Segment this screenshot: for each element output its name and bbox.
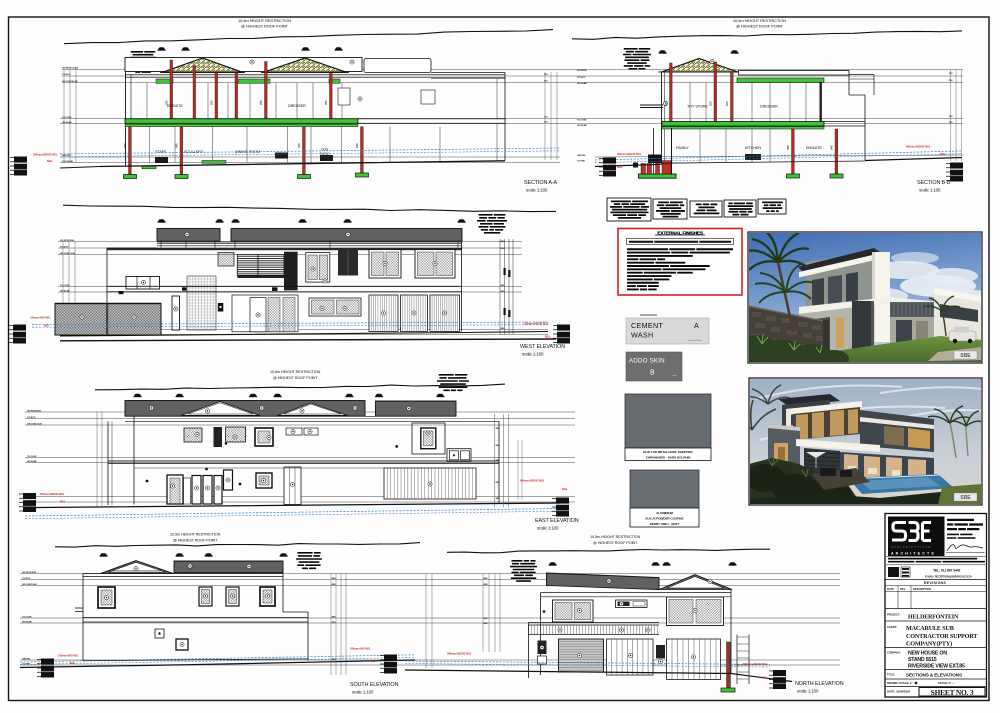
svg-text:2850: 2850 [496, 460, 500, 462]
svg-text:T.O.CONC: T.O.CONC [577, 120, 587, 122]
svg-text:U/S SLAB: U/S SLAB [22, 620, 32, 623]
svg-text:U/S ROOF SLAB: U/S ROOF SLAB [62, 67, 78, 70]
svg-text:CEMENT: CEMENT [631, 321, 663, 330]
svg-text:A F R I C A ( P T Y ) L T: A F R I C A ( P T Y ) L T D [891, 545, 931, 549]
svg-text:DATE: 10/04/2024: DATE: 10/04/2024 [887, 690, 911, 694]
svg-text:REV: REV [900, 587, 906, 591]
svg-text:SOUTH ELEVATION: SOUTH ELEVATION [350, 682, 399, 688]
svg-text:SBE: SBE [960, 495, 971, 501]
svg-text:STAGE 2= ---: STAGE 2= --- [938, 681, 955, 685]
svg-text:A: A [694, 321, 699, 330]
svg-text:3465: 3465 [357, 142, 359, 148]
svg-text:T.O.CONC: T.O.CONC [60, 285, 70, 287]
svg-text:A R C H I T E C T S: A R C H I T E C T S [891, 552, 934, 556]
svg-text:U/S SLAB: U/S SLAB [62, 121, 72, 124]
svg-text:T.O.W 1F: T.O.W 1F [27, 417, 36, 419]
svg-text:COMPANY:: COMPANY: [887, 651, 901, 655]
svg-text:600mm ABOVE NGL: 600mm ABOVE NGL [743, 662, 768, 666]
svg-text:3465: 3465 [177, 142, 179, 148]
svg-text:scale 1:100: scale 1:100 [919, 188, 941, 193]
svg-text:600mm ABOVE NGL: 600mm ABOVE NGL [906, 145, 931, 149]
svg-text:ENSUITE: ENSUITE [167, 104, 183, 108]
svg-text:3465: 3465 [788, 144, 790, 150]
svg-text:KITCHEN: KITCHEN [745, 146, 761, 150]
svg-text:RIVERSIDE VIEW EXT.85: RIVERSIDE VIEW EXT.85 [908, 664, 965, 670]
svg-text:U/S ROOFSLB: U/S ROOFSLB [60, 240, 74, 242]
svg-text:10,5m HEIGHT RESTRICTION: 10,5m HEIGHT RESTRICTION [733, 18, 786, 23]
svg-text:600mm ABOVE NGL: 600mm ABOVE NGL [520, 479, 545, 483]
svg-text:NGL: NGL [940, 152, 946, 156]
svg-text:T.O.W 1F: T.O.W 1F [22, 578, 31, 580]
svg-text:2850: 2850 [501, 241, 505, 243]
svg-text:550mm ABOVE NGL: 550mm ABOVE NGL [617, 152, 642, 156]
svg-text:2850: 2850 [496, 482, 500, 484]
svg-text:scale 1:100: scale 1:100 [352, 690, 374, 695]
svg-text:DRESSER: DRESSER [760, 105, 778, 109]
svg-text:2850: 2850 [711, 100, 713, 106]
svg-text:scale 1:100: scale 1:100 [797, 689, 819, 694]
svg-text:DATE: DATE [887, 587, 894, 591]
svg-text:10,5m HEIGHT RESTRICTION: 10,5m HEIGHT RESTRICTION [238, 18, 291, 23]
svg-text:@ HIGHEST ROOF POINT: @ HIGHEST ROOF POINT [173, 538, 218, 542]
svg-text:NGL: NGL [617, 165, 623, 169]
svg-text:NEW HOUSE ON: NEW HOUSE ON [908, 651, 947, 657]
svg-text:NORTH ELEVATION: NORTH ELEVATION [795, 681, 844, 687]
svg-text:550mm ABOVE NGL: 550mm ABOVE NGL [33, 153, 58, 157]
svg-text:2850: 2850 [496, 498, 500, 500]
svg-text:WEST ELEVATION: WEST ELEVATION [520, 344, 565, 350]
svg-text:CHROMADEK - DARK DOLPHIN: CHROMADEK - DARK DOLPHIN [646, 456, 691, 460]
svg-text:SBE: SBE [960, 353, 971, 359]
svg-text:U/S ROOF: U/S ROOF [577, 70, 588, 72]
svg-text:TEL: 011 867 3442: TEL: 011 867 3442 [933, 569, 961, 573]
svg-text:EAST ELEVATION: EAST ELEVATION [535, 518, 579, 524]
svg-text:NGL: NGL [545, 335, 551, 339]
svg-text:3465: 3465 [125, 142, 127, 148]
svg-text:addo: addo [672, 375, 678, 377]
svg-text:CONTRACTOR SUPPORT: CONTRACTOR SUPPORT [906, 633, 978, 640]
svg-text:NGL: NGL [762, 676, 768, 680]
svg-text:WASH: WASH [631, 331, 654, 340]
svg-text:550mm ABOVE NGL: 550mm ABOVE NGL [524, 321, 549, 325]
svg-text:REVISIONS: REVISIONS [924, 581, 947, 585]
svg-text:NGL: NGL [47, 159, 53, 163]
svg-text:U/S ROOFSLB: U/S ROOFSLB [22, 572, 36, 574]
svg-text:2850: 2850 [501, 248, 505, 250]
svg-text:T.O.FOUND: T.O.FOUND [62, 161, 73, 163]
svg-text:2850: 2850 [501, 291, 505, 293]
svg-text:U/S SLAB: U/S SLAB [577, 82, 587, 85]
svg-text:ADDO SKIN: ADDO SKIN [629, 358, 665, 365]
svg-text:550mm ABOVE NGL: 550mm ABOVE NGL [447, 652, 472, 656]
svg-text:100mm ABV NGL: 100mm ABV NGL [30, 316, 51, 320]
svg-text:BERRY GREY - MATT: BERRY GREY - MATT [650, 522, 680, 526]
svg-text:10,5m HEIGHT RESTRICTION: 10,5m HEIGHT RESTRICTION [590, 535, 641, 539]
svg-text:2850: 2850 [332, 659, 336, 661]
svg-text:KLIP-LOK METAL ROOF SHEETING: KLIP-LOK METAL ROOF SHEETING [643, 450, 693, 454]
svg-text:scale 1:100: scale 1:100 [522, 352, 544, 357]
svg-text:CLIENT:: CLIENT: [887, 625, 897, 629]
svg-text:2850: 2850 [496, 428, 500, 430]
svg-text:100mm ABV NGL: 100mm ABV NGL [350, 647, 371, 651]
svg-text:TITLE:: TITLE: [887, 673, 895, 677]
svg-text:SECTION B-B: SECTION B-B [917, 180, 951, 186]
svg-text:GRD FFL: GRD FFL [577, 155, 587, 157]
svg-text:2850: 2850 [484, 618, 488, 620]
svg-text:3465: 3465 [832, 144, 834, 150]
svg-text:TOY STORE: TOY STORE [687, 105, 708, 109]
svg-text:@ HIGHEST ROOF POINT: @ HIGHEST ROOF POINT [241, 24, 289, 29]
svg-text:T.O.W 1F: T.O.W 1F [577, 77, 586, 79]
svg-text:Cement Plash: Cement Plash [688, 339, 703, 342]
svg-text:SECTIONS & ELEVATIONS: SECTIONS & ELEVATIONS [906, 673, 962, 678]
svg-text:T.O.CONC: T.O.CONC [27, 456, 37, 458]
svg-text:3465: 3465 [299, 142, 301, 148]
svg-text:GRD FFL: GRD FFL [22, 658, 32, 660]
svg-text:2850: 2850 [501, 328, 505, 330]
svg-text:2850: 2850 [212, 99, 214, 105]
svg-text:NGL: NGL [44, 324, 50, 328]
svg-text:ALUMINIUM: ALUMINIUM [656, 511, 673, 515]
svg-text:SHEET NO. 3: SHEET NO. 3 [931, 688, 974, 697]
svg-text:T.O.FND: T.O.FND [577, 161, 585, 163]
svg-text:DRESSER: DRESSER [288, 104, 306, 108]
svg-text:COMPANY(PTY): COMPANY(PTY) [906, 641, 952, 648]
svg-text:2850: 2850 [496, 445, 500, 447]
svg-text:DRAWN: STAGE 1=: DRAWN: STAGE 1= [887, 681, 913, 685]
svg-text:T.O.CONC: T.O.CONC [22, 616, 32, 618]
svg-text:2850: 2850 [484, 578, 488, 580]
svg-text:U/S CONC SLB: U/S CONC SLB [22, 584, 37, 586]
svg-text:2850: 2850 [332, 622, 336, 624]
svg-text:STAFF: STAFF [155, 150, 167, 154]
svg-text:NGL: NGL [70, 661, 76, 665]
svg-text:MACARULE SUB: MACARULE SUB [906, 625, 954, 632]
svg-text:NGL: NGL [370, 659, 376, 663]
svg-text:DESCRIPTION: DESCRIPTION [913, 587, 931, 591]
svg-text:2850: 2850 [332, 584, 336, 586]
svg-text:U/S SLAB: U/S SLAB [60, 289, 70, 292]
svg-text:scale 1:100: scale 1:100 [526, 188, 548, 193]
svg-text:2850: 2850 [484, 623, 488, 625]
svg-text:STAND 5515: STAND 5515 [908, 657, 937, 663]
svg-text:T.O.W 1F: T.O.W 1F [60, 246, 69, 248]
svg-text:2850: 2850 [666, 100, 668, 106]
svg-text:2850: 2850 [332, 617, 336, 619]
svg-text:PROJECT:: PROJECT: [887, 613, 900, 617]
svg-text:2850: 2850 [484, 584, 488, 586]
svg-text:@ HIGHEST ROOF POINT: @ HIGHEST ROOF POINT [593, 541, 638, 545]
svg-text:FAMILY: FAMILY [676, 146, 689, 150]
svg-text:2850: 2850 [501, 285, 505, 287]
svg-text:10,5m HEIGHT RESTRICTION: 10,5m HEIGHT RESTRICTION [270, 370, 321, 374]
svg-text:U/S SLAB: U/S SLAB [27, 460, 37, 463]
svg-text:ENSUITE: ENSUITE [806, 146, 822, 150]
svg-text:B: B [650, 370, 655, 377]
svg-text:2850: 2850 [332, 578, 336, 580]
svg-text:U/S CONC SLB: U/S CONC SLB [27, 423, 42, 425]
svg-text:@ HIGHEST ROOF POINT: @ HIGHEST ROOF POINT [273, 376, 318, 380]
svg-text:T.O.CONC: T.O.CONC [62, 117, 72, 119]
svg-text:SECTION A-A: SECTION A-A [524, 180, 558, 186]
svg-text:550mm ABOVE NGL: 550mm ABOVE NGL [40, 492, 65, 496]
svg-text:U/S ROOFSLB: U/S ROOFSLB [27, 410, 41, 412]
svg-text:U/S CONC SLB: U/S CONC SLB [60, 253, 75, 255]
svg-text:NGL: NGL [562, 487, 568, 491]
svg-text:NGL: NGL [60, 500, 66, 504]
svg-text:2850: 2850 [261, 99, 263, 105]
svg-text:@ HIGHEST ROOF POINT: @ HIGHEST ROOF POINT [736, 24, 784, 29]
svg-text:E-MAIL: RECEPTION@SBEARCH.CO.Z: E-MAIL: RECEPTION@SBEARCH.CO.ZA [925, 575, 972, 579]
svg-text:100mm ABV NGL: 100mm ABV NGL [58, 654, 79, 658]
svg-text:scale 1:100: scale 1:100 [537, 526, 559, 531]
svg-text:DULUX POWDER COATING: DULUX POWDER COATING [645, 517, 684, 521]
svg-text:10,5m HEIGHT RESTRICTION: 10,5m HEIGHT RESTRICTION [170, 533, 221, 537]
svg-text:HELDERFONTEIN: HELDERFONTEIN [908, 615, 959, 621]
svg-text:2850: 2850 [727, 100, 729, 106]
svg-text:2850: 2850 [326, 99, 328, 105]
svg-text:U/S SLAB: U/S SLAB [577, 124, 587, 127]
